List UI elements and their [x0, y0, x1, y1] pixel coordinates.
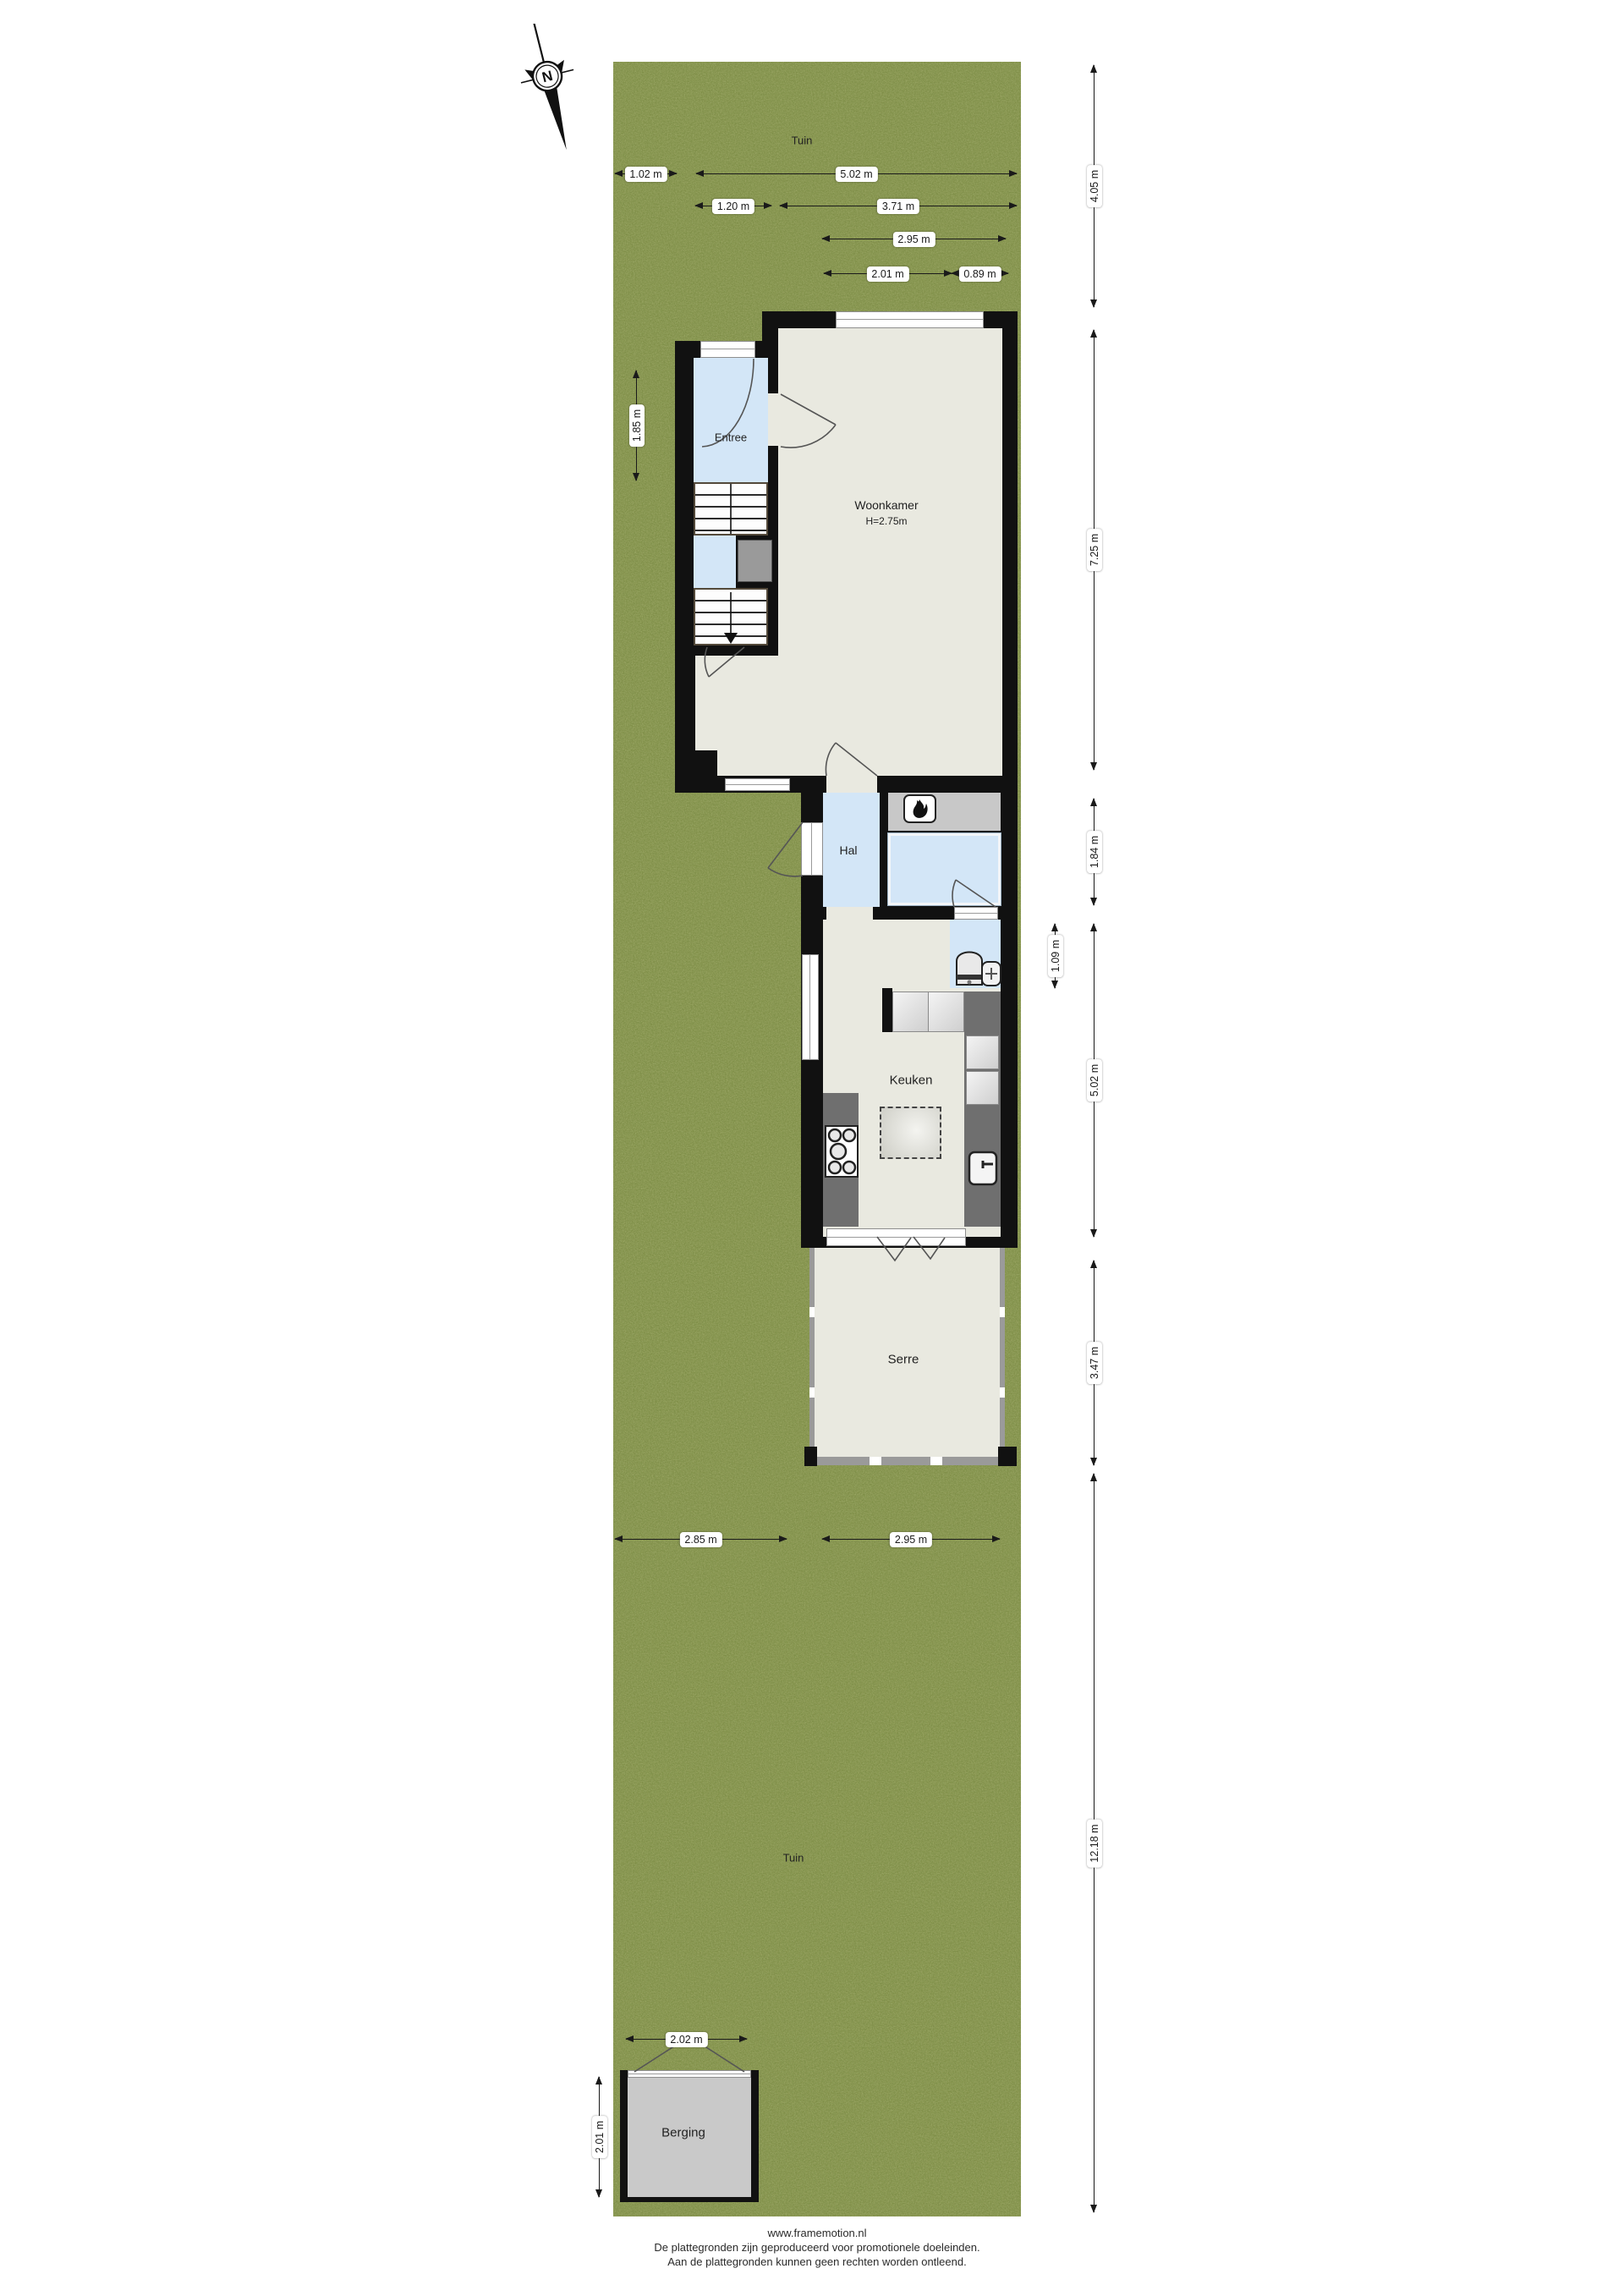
dim-back-garden-depth: 12.18 m: [1094, 1474, 1095, 2212]
dim-keuken-depth: 5.02 m: [1094, 924, 1095, 1237]
hal-back-door-swing: [768, 822, 803, 876]
dim-front-garden-depth: 4.05 m: [1094, 65, 1095, 307]
footer-disclaimer-1: De plattegronden zijn geproduceerd voor …: [0, 2241, 1624, 2254]
footer-website: www.framemotion.nl: [0, 2227, 1624, 2239]
dim-keuken-width: 2.01 m: [824, 273, 952, 274]
entree-woonkamer-door-swing: [781, 394, 836, 448]
serre-door-left-swing: [877, 1237, 911, 1261]
entree-label: Entree: [715, 431, 747, 444]
dim-woonkamer-width: 3.71 m: [780, 206, 1017, 206]
floorplan-page: Tuin Tuin N: [0, 0, 1624, 2296]
serre-door-right-swing: [913, 1237, 945, 1259]
footer-disclaimer-2: Aan de plattegronden kunnen geen rechten…: [0, 2255, 1624, 2268]
stairs-down-arrow-head: [724, 633, 738, 644]
woonkamer-height-label: H=2.75m: [865, 515, 907, 527]
dim-mid-width: 2.95 m: [822, 239, 1006, 239]
dim-garden-bottom-left: 2.85 m: [615, 1539, 787, 1540]
dim-toilet-width: 0.89 m: [952, 273, 1008, 274]
berging-label: Berging: [661, 2126, 705, 2140]
dim-serre-depth: 3.47 m: [1094, 1261, 1095, 1465]
door-swing-overlay: [0, 0, 1624, 2296]
keuken-label: Keuken: [890, 1074, 933, 1088]
bathroom-door-swing: [952, 880, 996, 907]
dim-berging-width: 2.02 m: [626, 2039, 747, 2040]
dim-entree-depth: 1.85 m: [636, 371, 637, 481]
dim-woonkamer-depth: 7.25 m: [1094, 330, 1095, 770]
dim-entree-width: 1.20 m: [695, 206, 771, 206]
woonkamer-label: Woonkamer: [854, 498, 918, 512]
hal-label: Hal: [839, 843, 857, 857]
serre-label: Serre: [888, 1353, 919, 1367]
dim-garden-left-width: 1.02 m: [615, 173, 677, 174]
dim-hal-depth: 1.84 m: [1094, 799, 1095, 905]
stairs-door-swing: [705, 647, 744, 677]
dim-toilet-depth: 1.09 m: [1055, 924, 1056, 988]
woonkamer-hal-door-swing: [826, 743, 877, 776]
dim-garden-bottom-right: 2.95 m: [822, 1539, 1000, 1540]
dim-house-width-total: 5.02 m: [696, 173, 1017, 174]
dim-berging-depth: 2.01 m: [599, 2077, 600, 2197]
